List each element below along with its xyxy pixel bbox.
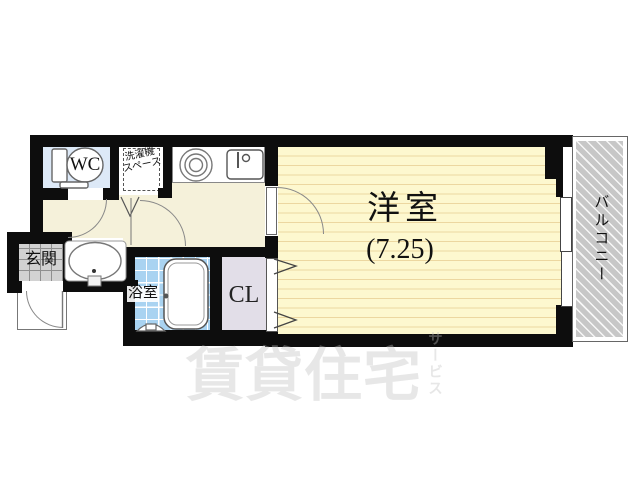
kitchen-sink-icon bbox=[227, 150, 263, 179]
kitchen-burner-icon bbox=[180, 149, 212, 181]
closet-label: CL bbox=[222, 283, 266, 308]
closet-door-chevron-top bbox=[274, 259, 296, 274]
bathroom-label: 浴室 bbox=[127, 286, 159, 302]
floor-plan: バルコニー WC 洗濯機 スペース 洋室 (7.25) 玄関 浴室 CL 賃貸住… bbox=[0, 0, 640, 480]
main-room-label: 洋室 bbox=[310, 192, 500, 227]
watermark-subtext: サービス bbox=[424, 331, 445, 397]
laundry-folding-door-mark bbox=[121, 197, 139, 216]
bathtub-icon bbox=[164, 259, 209, 329]
washbasin-icon bbox=[65, 241, 126, 286]
shower-step-icon bbox=[137, 324, 165, 331]
entrance-label: 玄関 bbox=[19, 252, 63, 269]
balcony-area: バルコニー bbox=[576, 141, 623, 337]
watermark-text: 賃貸住宅 bbox=[186, 328, 422, 412]
closet-door-chevron-bottom bbox=[274, 312, 296, 328]
main-room-size-label: (7.25) bbox=[310, 235, 490, 264]
balcony-label: バルコニー bbox=[592, 194, 608, 284]
wc-label: WC bbox=[66, 155, 104, 175]
